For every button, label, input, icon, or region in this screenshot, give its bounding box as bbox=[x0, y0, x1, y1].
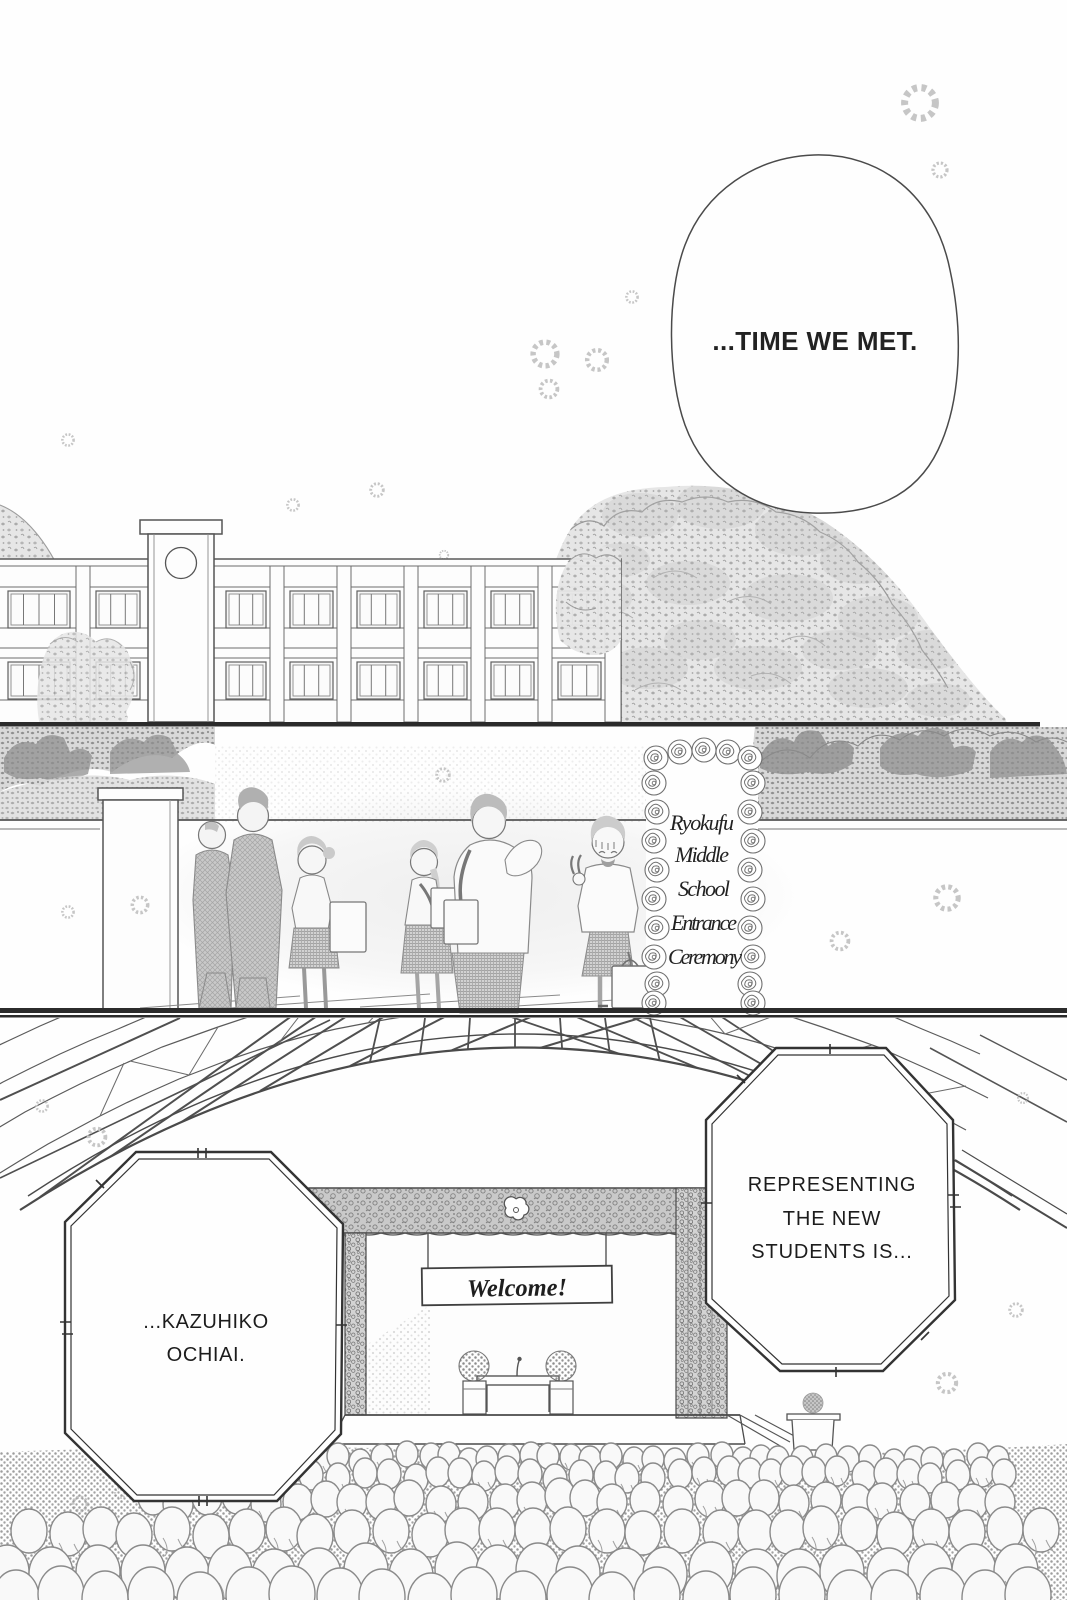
svg-text:...TIME WE MET.: ...TIME WE MET. bbox=[712, 326, 917, 356]
svg-text:STUDENTS IS...: STUDENTS IS... bbox=[751, 1241, 913, 1263]
svg-text:Ceremony: Ceremony bbox=[668, 944, 742, 969]
svg-text:Welcome!: Welcome! bbox=[467, 1274, 567, 1302]
svg-text:REPRESENTING: REPRESENTING bbox=[748, 1174, 917, 1196]
svg-text:Ryokufu: Ryokufu bbox=[669, 810, 734, 835]
svg-text:Middle: Middle bbox=[674, 842, 729, 867]
svg-text:THE NEW: THE NEW bbox=[783, 1208, 882, 1230]
svg-text:OCHIAI.: OCHIAI. bbox=[167, 1344, 246, 1366]
svg-text:Entrance: Entrance bbox=[670, 910, 737, 935]
svg-text:School: School bbox=[678, 876, 730, 901]
svg-text:...KAZUHIKO: ...KAZUHIKO bbox=[143, 1311, 269, 1333]
